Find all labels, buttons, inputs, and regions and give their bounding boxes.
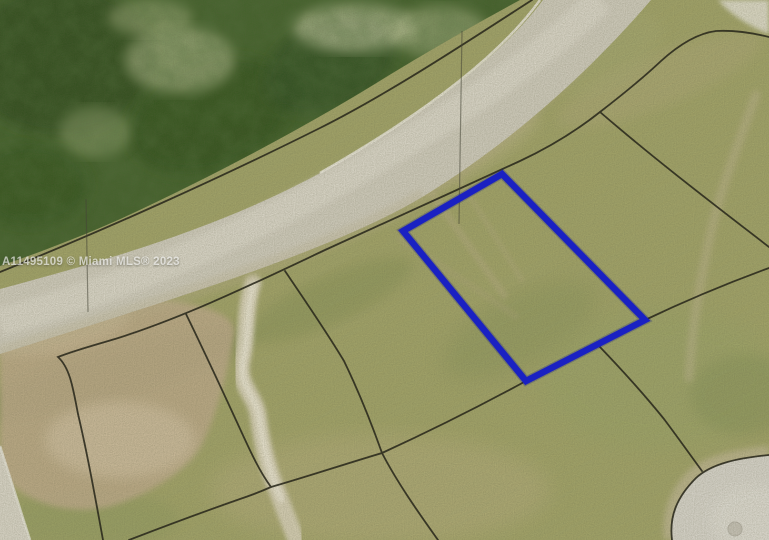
aerial-parcel-photo: A11495109 © Miami MLS® 2023 <box>0 0 769 540</box>
aerial-photo-canvas <box>0 0 769 540</box>
